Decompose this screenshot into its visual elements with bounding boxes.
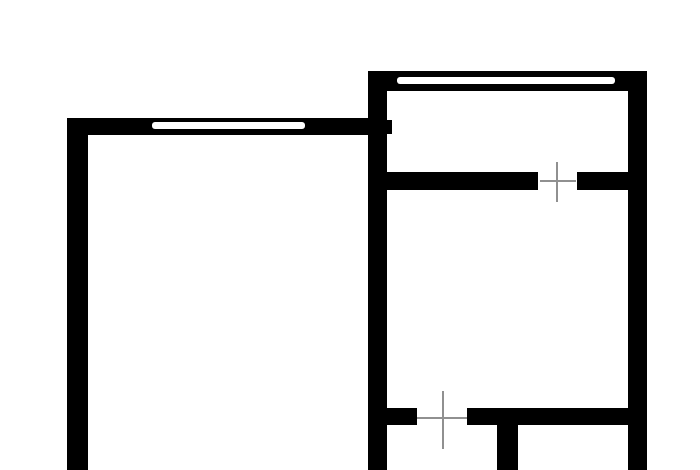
floor-plan-canvas	[0, 0, 700, 470]
right-unit-east-wall	[628, 71, 647, 470]
center-vertical-wall	[368, 71, 387, 470]
left-room-west-wall	[67, 118, 88, 470]
bottom-stub-wall	[497, 425, 518, 470]
lower-partition-left-segment	[387, 408, 417, 425]
upper-door-marker-vertical-line	[556, 162, 558, 202]
upper-door-marker-horizontal-line	[540, 180, 576, 182]
right-unit-north-wall	[368, 71, 647, 91]
upper-partition-left-segment	[387, 172, 538, 190]
center-wall-stub	[387, 120, 392, 134]
left-room-north-wall	[67, 118, 368, 135]
upper-partition-right-segment	[577, 172, 628, 190]
right-unit-window	[397, 77, 615, 84]
lower-partition-right-segment	[467, 408, 628, 425]
left-room-window	[152, 122, 305, 129]
lower-door-marker-vertical-line	[442, 391, 444, 449]
lower-door-marker-horizontal-line	[417, 417, 467, 419]
